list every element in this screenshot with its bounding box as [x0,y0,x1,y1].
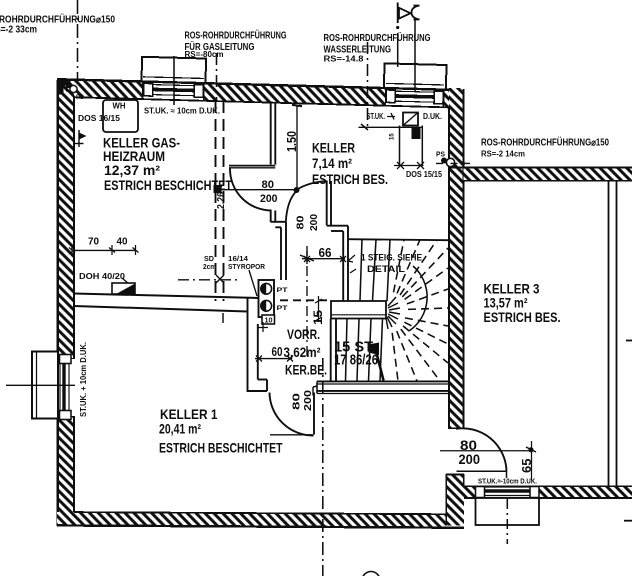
svg-text:ROS-ROHRDURCHFÜHRUNG: ROS-ROHRDURCHFÜHRUNG [324,33,431,44]
svg-text:KELLER: KELLER [312,140,355,156]
svg-text:D.UK.: D.UK. [423,112,442,121]
svg-text:60: 60 [272,345,283,359]
svg-text:DOS 16/15: DOS 16/15 [78,114,121,123]
svg-text:PT: PT [277,287,289,294]
svg-text:66: 66 [319,245,332,260]
svg-text:ST.UK. ≈ 10cm D.UK.: ST.UK. ≈ 10cm D.UK. [144,107,220,116]
svg-text:ST.UK. + 10cm D.UK.: ST.UK. + 10cm D.UK. [78,342,88,417]
svg-text:DOH 40/20: DOH 40/20 [79,271,125,281]
svg-text:VORR.: VORR. [287,326,320,342]
svg-text:12,37 m²: 12,37 m² [104,162,160,178]
svg-text:200: 200 [260,193,278,205]
svg-text:70: 70 [88,236,99,248]
svg-text:ROS-ROHRDURCHFÜHRUNG: ROS-ROHRDURCHFÜHRUNG [185,31,287,42]
svg-text:RS=-2 14cm: RS=-2 14cm [481,150,525,159]
svg-text:ESTRICH BES.: ESTRICH BES. [484,309,561,325]
svg-text:PS: PS [76,95,84,101]
svg-text:RS=-80cm: RS=-80cm [185,50,224,59]
svg-text:17 86/26: 17 86/26 [334,353,378,369]
svg-text:RS=-14.8: RS=-14.8 [324,55,365,64]
svg-text:KER.BE.: KER.BE. [285,362,327,378]
svg-text:ROS-ROHRDURCHFÜHRUNG⌀150: ROS-ROHRDURCHFÜHRUNG⌀150 [481,138,609,149]
svg-text:DOS 15/15: DOS 15/15 [406,170,443,179]
svg-text:10: 10 [265,316,273,325]
svg-text:80: 80 [292,392,303,410]
svg-text:200: 200 [459,451,481,467]
svg-text:2.26: 2.26 [216,192,227,209]
svg-text:200: 200 [303,389,314,411]
svg-text:ESTRICH BES.: ESTRICH BES. [312,171,388,187]
svg-text:PS: PS [436,150,445,159]
svg-text:ESTRICH BESCHICHTET: ESTRICH BESCHICHTET [104,177,232,193]
svg-text:STYROPOR: STYROPOR [228,262,265,271]
svg-text:PT: PT [277,305,289,312]
svg-text:ESTRICH BESCHICHTET: ESTRICH BESCHICHTET [159,440,283,456]
svg-text:RS=-2 33cm: RS=-2 33cm [0,25,37,36]
svg-text:ST.UK.≈-10cm D.UK.: ST.UK.≈-10cm D.UK. [478,477,537,486]
svg-text:1 STEIG. SIEHE: 1 STEIG. SIEHE [361,253,422,264]
svg-text:2cm: 2cm [203,262,216,271]
svg-text:200: 200 [309,214,320,231]
svg-text:65: 65 [519,459,534,474]
svg-text:20,41 m²: 20,41 m² [159,421,201,437]
svg-text:1.50: 1.50 [284,131,299,152]
svg-text:DETAIL: DETAIL [367,264,405,275]
svg-text:ST.UK.: ST.UK. [367,112,386,121]
svg-text:WH: WH [113,101,126,111]
svg-text:40: 40 [117,236,128,248]
svg-text:15: 15 [390,133,396,140]
svg-text:7,14 m²: 7,14 m² [312,155,352,171]
svg-text:80: 80 [262,179,275,191]
svg-text:15: 15 [311,310,325,325]
svg-text:80: 80 [296,215,307,230]
